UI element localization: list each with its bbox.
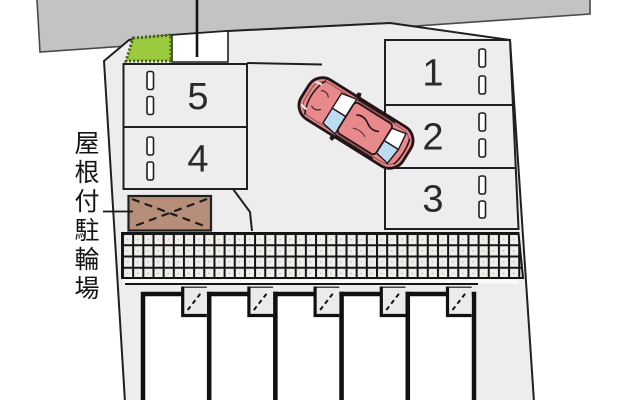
bicycle-shed xyxy=(129,196,212,231)
parking-space-2-number: 2 xyxy=(422,117,443,159)
tiled-walkway xyxy=(122,233,523,278)
parking-space-1-number: 1 xyxy=(422,53,443,95)
walkway-edge-gap xyxy=(123,280,519,284)
bicycle-parking-label: 屋根付駐輪場 xyxy=(72,130,97,320)
apartment-building xyxy=(143,287,474,400)
site-plan: 5 4 1 2 3 xyxy=(0,0,640,400)
planting-area xyxy=(126,35,171,61)
parking-space-3-number: 3 xyxy=(422,179,443,221)
parking-space-4-number: 4 xyxy=(187,139,208,181)
parking-space-5-number: 5 xyxy=(187,76,208,118)
parking-left-column: 5 4 xyxy=(124,64,248,189)
